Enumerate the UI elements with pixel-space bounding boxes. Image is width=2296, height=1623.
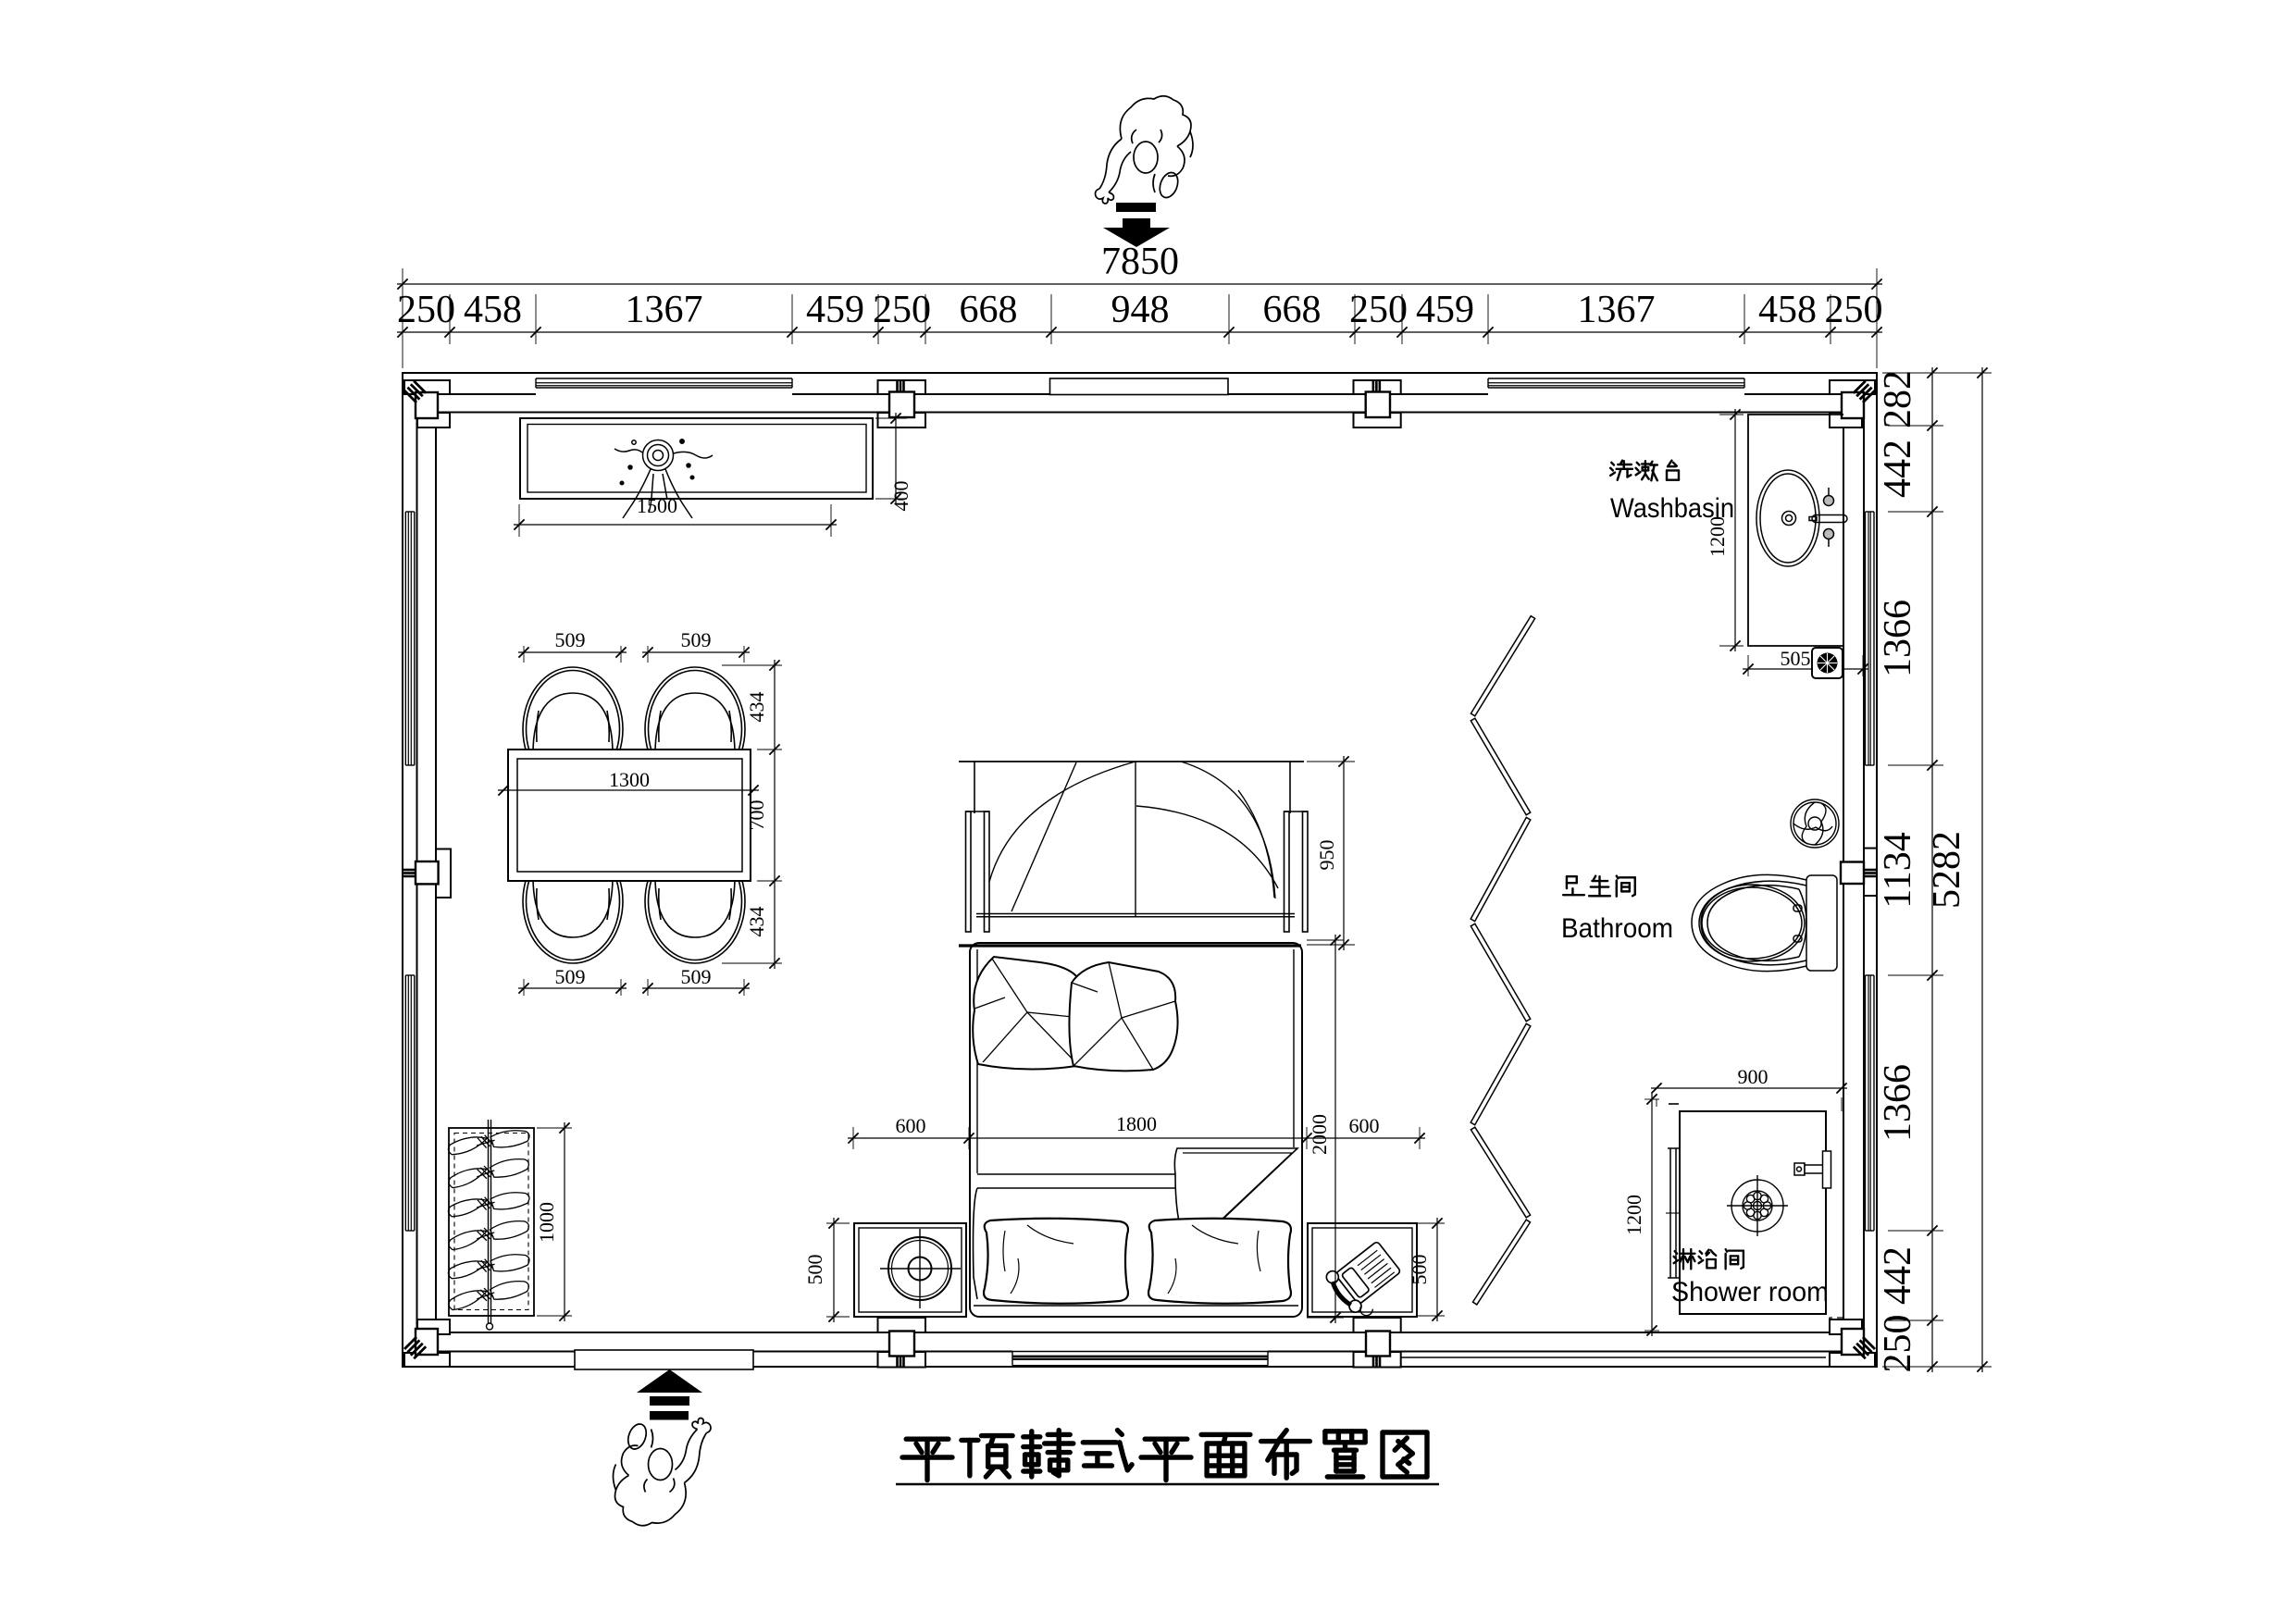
svg-text:948: 948 (1111, 289, 1170, 331)
svg-text:500: 500 (1408, 1255, 1431, 1285)
svg-text:459: 459 (1416, 289, 1474, 331)
svg-text:1367: 1367 (626, 289, 703, 331)
svg-text:1300: 1300 (609, 768, 650, 791)
svg-text:668: 668 (1263, 289, 1322, 331)
svg-text:434: 434 (745, 692, 768, 723)
svg-text:400: 400 (889, 481, 912, 512)
svg-text:505: 505 (1781, 647, 1811, 670)
svg-text:1134: 1134 (1877, 832, 1919, 908)
svg-text:250: 250 (1825, 289, 1883, 331)
svg-text:250: 250 (1349, 289, 1408, 331)
svg-text:250: 250 (873, 289, 931, 331)
svg-text:600: 600 (896, 1114, 926, 1137)
svg-text:1366: 1366 (1877, 600, 1919, 677)
svg-text:600: 600 (1349, 1114, 1380, 1137)
svg-text:509: 509 (555, 628, 586, 651)
svg-text:1200: 1200 (1622, 1195, 1645, 1235)
svg-text:1366: 1366 (1877, 1064, 1919, 1142)
svg-text:1000: 1000 (535, 1202, 558, 1243)
svg-text:509: 509 (681, 965, 712, 988)
svg-text:1200: 1200 (1706, 516, 1729, 557)
svg-text:509: 509 (681, 628, 712, 651)
svg-text:7850: 7850 (1101, 241, 1179, 283)
svg-text:Shower room: Shower room (1671, 1277, 1829, 1307)
svg-text:458: 458 (464, 289, 522, 331)
svg-text:459: 459 (806, 289, 864, 331)
svg-text:434: 434 (745, 907, 768, 937)
svg-text:700: 700 (745, 800, 768, 831)
svg-text:1800: 1800 (1116, 1112, 1157, 1135)
svg-text:950: 950 (1315, 840, 1338, 871)
svg-text:Bathroom: Bathroom (1561, 913, 1673, 944)
svg-text:442: 442 (1877, 1246, 1919, 1305)
svg-text:250: 250 (397, 289, 455, 331)
svg-text:668: 668 (960, 289, 1018, 331)
svg-text:509: 509 (555, 965, 586, 988)
svg-text:250: 250 (1877, 1315, 1919, 1373)
svg-text:500: 500 (803, 1255, 826, 1285)
svg-text:900: 900 (1738, 1065, 1769, 1088)
svg-text:1500: 1500 (637, 494, 677, 517)
svg-text:2000: 2000 (1308, 1114, 1331, 1155)
svg-text:1367: 1367 (1578, 289, 1656, 331)
svg-text:282: 282 (1877, 370, 1919, 428)
svg-text:458: 458 (1758, 289, 1817, 331)
svg-text:442: 442 (1877, 440, 1919, 498)
